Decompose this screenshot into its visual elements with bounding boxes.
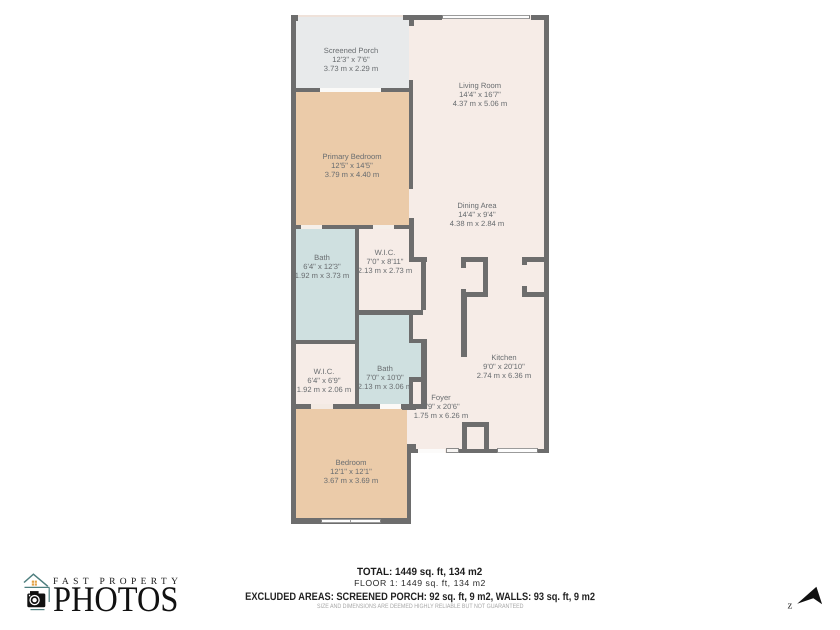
svg-text:z: z	[788, 600, 793, 612]
